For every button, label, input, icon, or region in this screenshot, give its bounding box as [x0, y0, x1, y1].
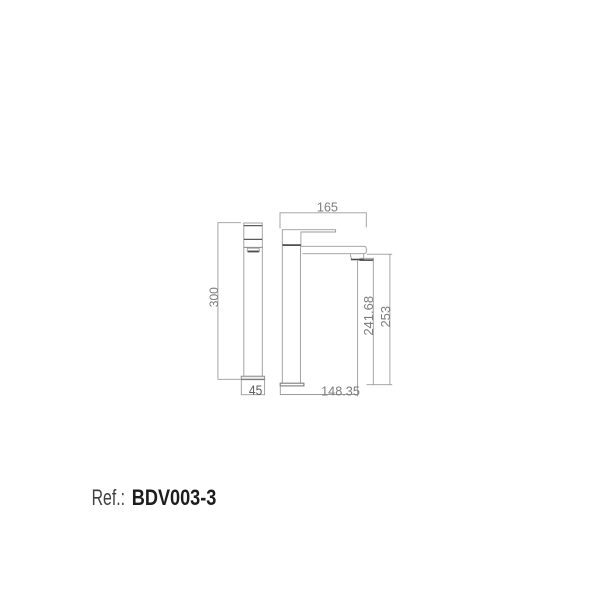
svg-text:300: 300 — [207, 287, 221, 307]
svg-text:165: 165 — [317, 201, 338, 215]
svg-text:253: 253 — [378, 306, 393, 328]
svg-text:Ref.:: Ref.: — [92, 487, 125, 511]
svg-text:148.35: 148.35 — [321, 384, 360, 398]
svg-text:241.68: 241.68 — [361, 296, 376, 336]
svg-text:45: 45 — [249, 382, 262, 398]
svg-text:BDV003-3: BDV003-3 — [132, 487, 217, 511]
